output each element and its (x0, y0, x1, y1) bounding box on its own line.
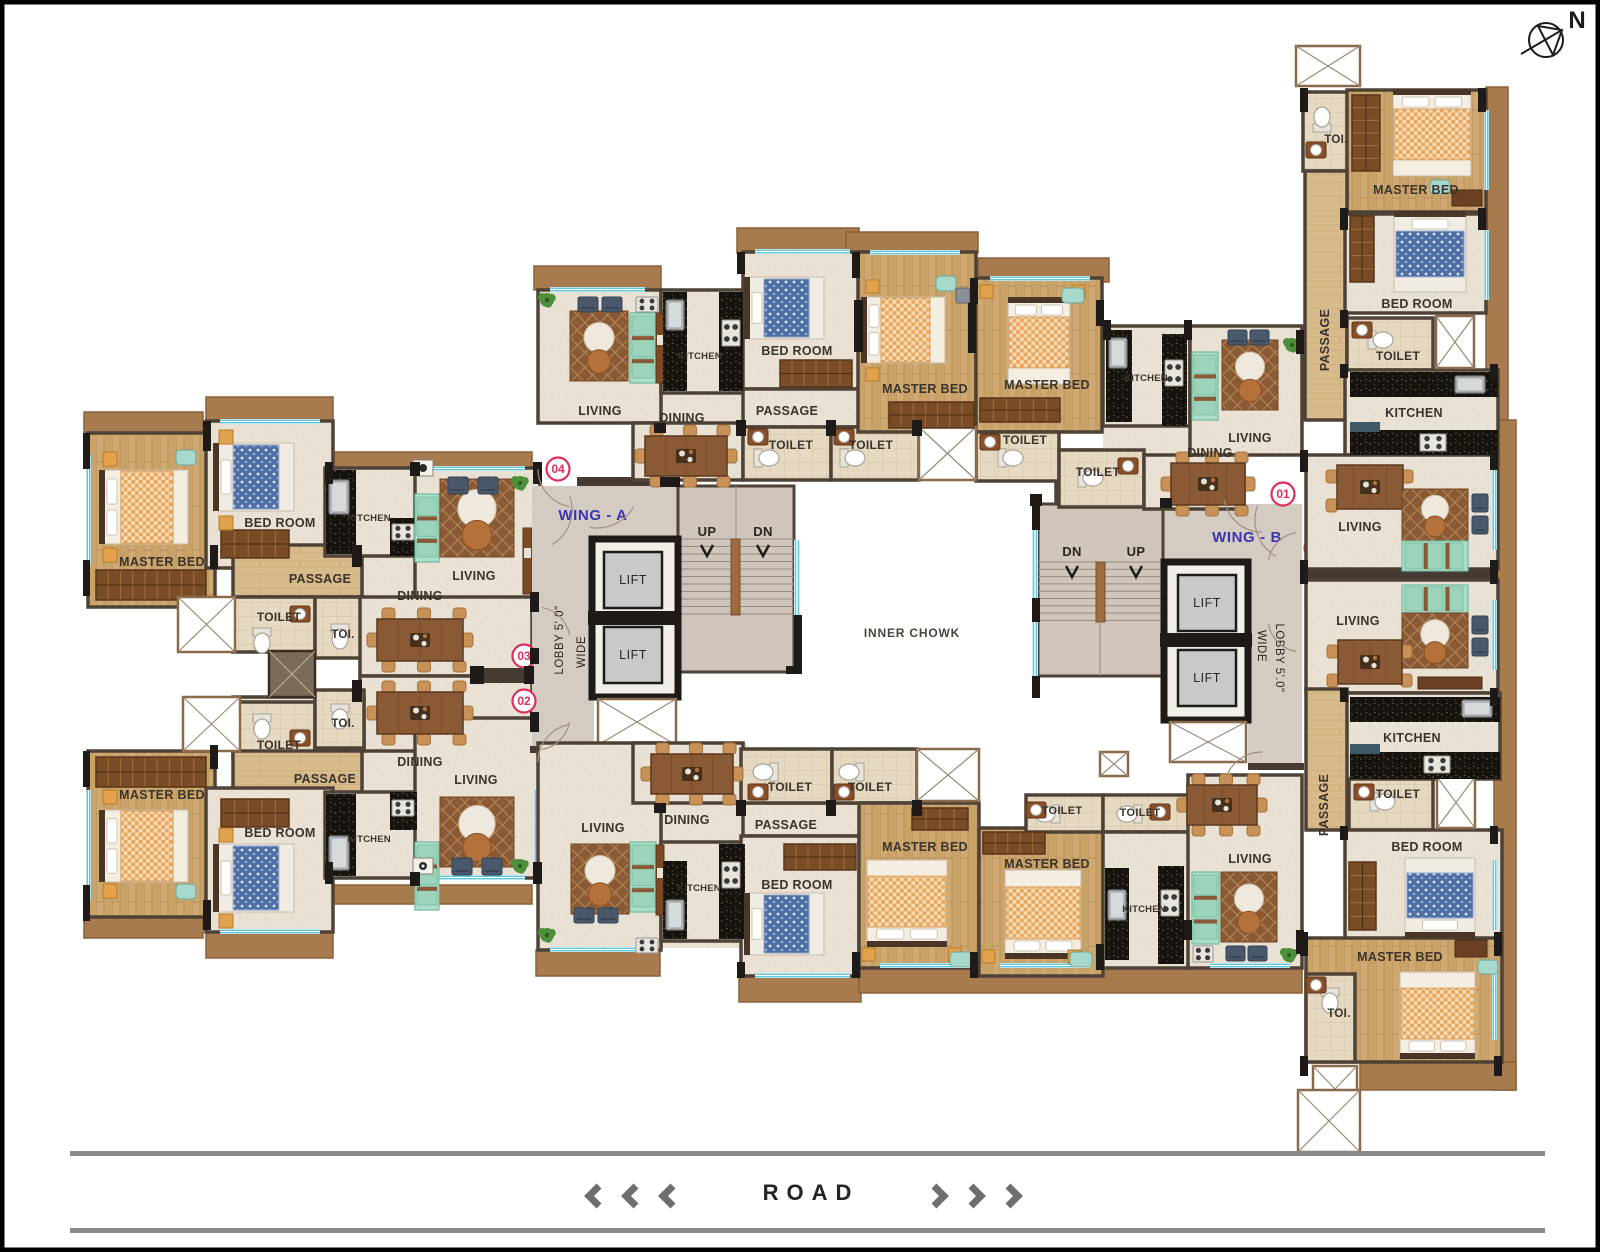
svg-text:PASSAGE: PASSAGE (1317, 774, 1331, 836)
svg-text:LOBBY 5'.0": LOBBY 5'.0" (554, 605, 566, 674)
svg-text:WIDE: WIDE (1255, 630, 1267, 662)
svg-text:01: 01 (1276, 487, 1290, 501)
svg-text:TOILET: TOILET (848, 780, 893, 794)
svg-text:03: 03 (517, 649, 531, 663)
svg-text:N: N (1568, 7, 1585, 34)
svg-text:TOILET: TOILET (257, 738, 302, 752)
svg-text:MASTER BED: MASTER BED (882, 840, 968, 854)
svg-text:DINING: DINING (397, 755, 443, 769)
svg-text:DN: DN (1062, 544, 1081, 559)
svg-text:KITCHEN: KITCHEN (678, 351, 722, 362)
svg-text:INNER CHOWK: INNER CHOWK (864, 626, 960, 640)
svg-text:MASTER BED: MASTER BED (1373, 183, 1459, 197)
svg-text:TOILET: TOILET (768, 780, 813, 794)
svg-text:PASSAGE: PASSAGE (755, 818, 817, 832)
svg-text:PASSAGE: PASSAGE (289, 572, 351, 586)
svg-text:BED ROOM: BED ROOM (244, 516, 315, 530)
svg-text:WING - A: WING - A (558, 507, 627, 524)
svg-text:ROAD: ROAD (763, 1180, 860, 1205)
svg-text:04: 04 (551, 462, 565, 476)
svg-text:LOBBY 5'.0": LOBBY 5'.0" (1273, 623, 1285, 692)
svg-text:LIVING: LIVING (1228, 431, 1271, 445)
svg-text:KITCHEN: KITCHEN (347, 834, 391, 845)
svg-text:DINING: DINING (664, 813, 710, 827)
svg-text:PASSAGE: PASSAGE (294, 772, 356, 786)
svg-text:MASTER BED: MASTER BED (882, 382, 968, 396)
svg-text:LIVING: LIVING (578, 404, 621, 418)
svg-text:MASTER BED: MASTER BED (1357, 950, 1443, 964)
svg-text:MASTER BED: MASTER BED (119, 788, 205, 802)
svg-text:KITCHEN: KITCHEN (677, 883, 721, 894)
svg-text:TOILET: TOILET (1042, 805, 1083, 817)
svg-text:LIVING: LIVING (452, 569, 495, 583)
svg-text:TOILET: TOILET (1376, 787, 1421, 801)
svg-text:WIDE: WIDE (576, 636, 588, 668)
svg-text:LIVING: LIVING (1338, 520, 1381, 534)
svg-text:LIVING: LIVING (1228, 852, 1271, 866)
svg-text:BED ROOM: BED ROOM (761, 344, 832, 358)
svg-text:LIVING: LIVING (1336, 614, 1379, 628)
svg-text:TOILET: TOILET (849, 438, 894, 452)
svg-text:KITCHEN: KITCHEN (1124, 373, 1168, 384)
svg-text:MASTER BED: MASTER BED (1004, 857, 1090, 871)
svg-text:DINING: DINING (659, 411, 705, 425)
svg-text:02: 02 (517, 694, 531, 708)
svg-text:MASTER BED: MASTER BED (1004, 378, 1090, 392)
svg-text:LIVING: LIVING (454, 773, 497, 787)
svg-text:LIFT: LIFT (619, 573, 647, 587)
svg-text:DINING: DINING (1187, 446, 1233, 460)
svg-text:TOILET: TOILET (1120, 807, 1161, 819)
svg-text:KITCHEN: KITCHEN (1122, 904, 1166, 915)
svg-text:TOI.: TOI. (331, 718, 354, 730)
svg-text:PASSAGE: PASSAGE (1318, 309, 1332, 371)
svg-text:BED ROOM: BED ROOM (1391, 840, 1462, 854)
svg-text:BED ROOM: BED ROOM (761, 878, 832, 892)
svg-text:UP: UP (698, 524, 717, 539)
svg-text:BED ROOM: BED ROOM (1381, 297, 1452, 311)
svg-text:DN: DN (753, 524, 772, 539)
svg-text:TOI.: TOI. (331, 629, 354, 641)
svg-text:LIFT: LIFT (1193, 596, 1221, 610)
svg-text:KITCHEN: KITCHEN (347, 513, 391, 524)
svg-text:MASTER BED: MASTER BED (119, 555, 205, 569)
svg-text:TOI.: TOI. (1327, 1008, 1350, 1020)
svg-text:KITCHEN: KITCHEN (1385, 406, 1443, 420)
svg-text:TOILET: TOILET (769, 438, 814, 452)
svg-text:LIFT: LIFT (619, 648, 647, 662)
svg-text:KITCHEN: KITCHEN (1383, 731, 1441, 745)
svg-text:TOILET: TOILET (1003, 433, 1048, 447)
svg-text:UP: UP (1127, 544, 1146, 559)
svg-text:DINING: DINING (397, 589, 443, 603)
svg-text:WING - B: WING - B (1212, 529, 1282, 546)
svg-text:TOILET: TOILET (1076, 465, 1121, 479)
svg-text:TOILET: TOILET (257, 610, 302, 624)
svg-text:LIFT: LIFT (1193, 671, 1221, 685)
svg-text:TOILET: TOILET (1376, 349, 1421, 363)
svg-text:BED ROOM: BED ROOM (244, 826, 315, 840)
svg-text:LIVING: LIVING (581, 821, 624, 835)
svg-text:PASSAGE: PASSAGE (756, 404, 818, 418)
svg-text:TOI.: TOI. (1324, 134, 1347, 146)
